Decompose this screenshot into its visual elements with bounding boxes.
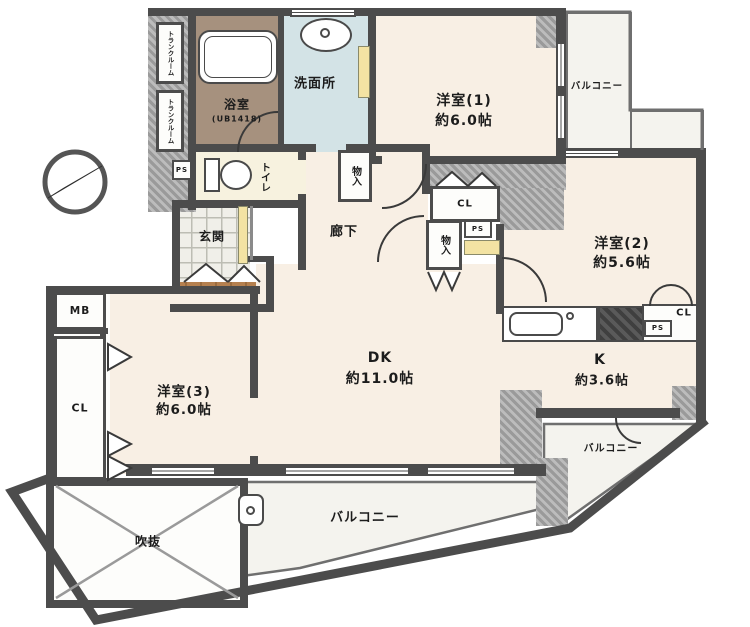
label-western1-area: 約6.0帖 — [435, 110, 493, 130]
label-closet-western3: CL — [71, 402, 88, 415]
wall — [426, 156, 566, 164]
compass-needle — [48, 166, 102, 198]
wall — [536, 408, 680, 418]
label-dk: DK — [368, 350, 392, 366]
label-hallway: 廊下 — [330, 221, 358, 240]
window — [290, 8, 356, 17]
wall — [278, 10, 284, 150]
wall — [422, 144, 430, 194]
kitchen-sink — [509, 312, 563, 336]
window — [564, 149, 620, 158]
label-bathroom: 浴室 — [224, 96, 250, 113]
label-western2-area: 約5.6帖 — [593, 252, 651, 272]
wall — [172, 200, 180, 290]
window — [284, 466, 410, 476]
label-storage-hall-lower: 物入 — [437, 235, 452, 255]
room-western1 — [372, 12, 560, 162]
label-dk-area: 約11.0帖 — [346, 368, 415, 388]
wall — [170, 304, 274, 312]
wall — [46, 478, 54, 608]
label-ps-hall: PS — [472, 225, 484, 233]
balcony-bottom-floor — [242, 482, 544, 576]
room-western2-ext — [502, 228, 564, 308]
label-toilet: トイレ — [257, 162, 272, 192]
wall — [188, 144, 428, 152]
room-dining-kitchen — [256, 264, 502, 470]
floor-plan: 浴室 (UB1418) 洗面所 トイレ PS 物入 玄関 廊下 洋室(1) 約6… — [0, 0, 750, 627]
label-closet-kitchen: CL — [676, 308, 692, 319]
door-gap-western3 — [250, 398, 258, 456]
label-trunk-room-1: トランクルーム — [165, 30, 175, 76]
wall — [46, 600, 248, 608]
hall-shelf — [464, 240, 500, 255]
label-washroom: 洗面所 — [294, 73, 336, 92]
window — [556, 42, 566, 88]
kitchen-faucet — [566, 312, 574, 320]
slop-sink-drain — [246, 506, 255, 515]
label-balcony-bottom: バルコニー — [330, 507, 400, 526]
label-closet-hall: CL — [457, 199, 473, 210]
washroom-shelf — [358, 46, 370, 98]
label-balcony-right: バルコニー — [584, 440, 639, 455]
entrance-step-line — [250, 206, 253, 260]
label-kitchen: K — [594, 352, 606, 368]
door-gap-toilet — [298, 160, 306, 194]
window — [556, 94, 566, 140]
label-balcony-top-right: バルコニー — [571, 78, 623, 92]
wall — [266, 262, 274, 310]
wall — [372, 156, 382, 164]
label-trunk-room-2: トランクルーム — [165, 98, 175, 144]
label-western2: 洋室(2) — [594, 233, 650, 253]
wall-block-dk-southeast — [500, 390, 542, 466]
label-western3: 洋室(3) — [157, 380, 211, 400]
label-western1: 洋室(1) — [436, 90, 492, 110]
compass-icon — [45, 152, 105, 212]
window — [426, 466, 516, 476]
wall — [46, 286, 54, 486]
toilet-tank — [204, 158, 220, 192]
wall — [148, 8, 566, 16]
balcony-top-right-lower — [630, 110, 704, 150]
label-void: 吹抜 — [135, 533, 161, 550]
bathtub-inner-line — [204, 36, 272, 78]
label-meter-box: MB — [70, 305, 90, 317]
label-bathroom-note: (UB1418) — [212, 115, 262, 124]
label-entrance: 玄関 — [199, 228, 225, 245]
label-ps-toilet: PS — [176, 166, 188, 174]
label-kitchen-area: 約3.6帖 — [575, 370, 629, 389]
label-ps-kitchen: PS — [652, 324, 664, 332]
washbasin-faucet — [320, 28, 330, 38]
shoe-cabinet — [238, 206, 248, 264]
stove — [598, 306, 644, 342]
wall-block-west2-left — [500, 188, 564, 230]
toilet-bowl — [220, 160, 252, 190]
wall — [696, 148, 706, 424]
room-western2 — [560, 156, 700, 308]
label-western3-area: 約6.0帖 — [156, 398, 212, 418]
wall — [496, 224, 504, 314]
window — [150, 466, 216, 476]
label-storage-hall-upper: 物入 — [348, 166, 363, 186]
